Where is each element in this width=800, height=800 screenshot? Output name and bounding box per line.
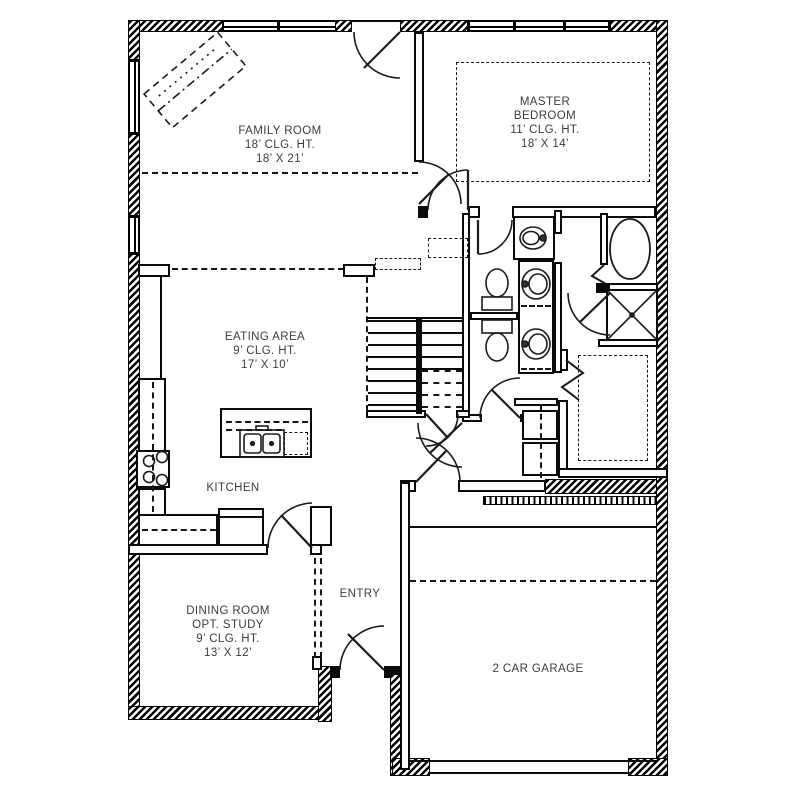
toilet-2 <box>482 320 512 361</box>
powder-room-door <box>480 378 520 418</box>
optional-corner-fireplace <box>144 32 246 127</box>
front-door <box>340 626 384 670</box>
vanity-sink-1 <box>522 269 550 299</box>
master-bath-door <box>478 220 512 254</box>
shower-door <box>568 293 610 335</box>
master-bedroom-door <box>428 170 468 210</box>
closet-opening-zigzag <box>562 360 583 400</box>
family-hall-door <box>419 162 461 204</box>
shower-x <box>608 291 656 339</box>
island-sink <box>240 426 284 457</box>
cooktop-burners <box>144 452 168 486</box>
bathtub <box>610 219 650 279</box>
plan-symbol-overlay <box>0 0 800 800</box>
back-door <box>354 32 400 78</box>
toilet <box>482 269 512 310</box>
vanity-sink-2 <box>522 329 550 359</box>
wc-sink <box>520 227 546 249</box>
garage-entry-door <box>416 438 460 482</box>
tub-wall-zigzag <box>592 265 606 284</box>
floor-plan: FAMILY ROOM 18’ CLG. HT. 18’ X 21’ MASTE… <box>0 0 800 800</box>
kitchen-hall-door <box>268 503 312 548</box>
